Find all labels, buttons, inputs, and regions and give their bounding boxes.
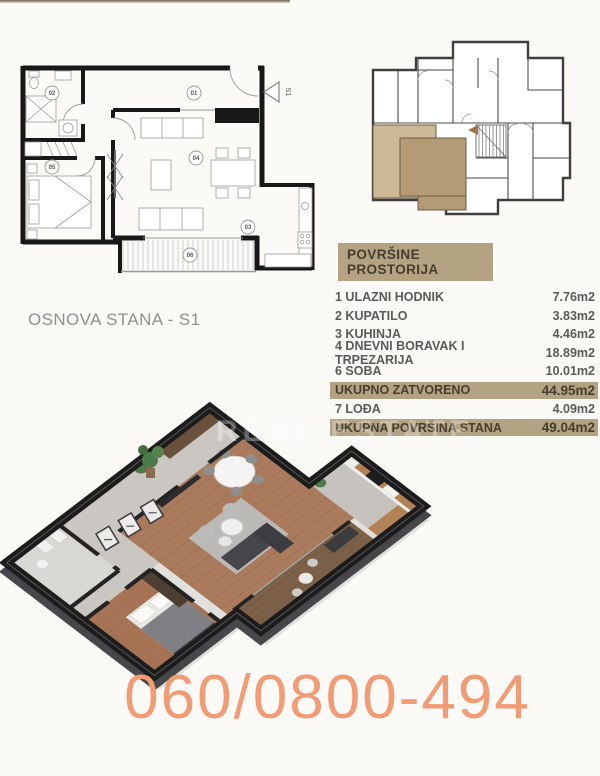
floor-plan-2d: 01 02 03 04 05 06 S1 — [15, 60, 325, 290]
room-area-value: 7.76m2 — [553, 290, 595, 304]
room-label-06: 06 — [187, 253, 194, 259]
room-area-value: 49.04m2 — [542, 420, 595, 435]
table-row: 1 ULAZNI HODNIK7.76m2 — [330, 288, 598, 307]
room-label-04: 04 — [193, 156, 200, 162]
room-area-value: 4.09m2 — [553, 402, 595, 416]
room-area-value: 4.46m2 — [553, 327, 595, 341]
building-locator-plan — [358, 28, 578, 228]
room-name: 4 DNEVNI BORAVAK I TRPEZARIJA — [335, 339, 546, 367]
iso-floors — [7, 388, 424, 694]
table-row: 4 DNEVNI BORAVAK I TRPEZARIJA18.89m2 — [330, 344, 598, 363]
room-area-value: 44.95m2 — [542, 383, 595, 398]
table-row: 2 KUPATILO3.83m2 — [330, 307, 598, 326]
room-name: 6 SOBA — [335, 364, 382, 378]
phone-number: 060/0800-494 — [55, 664, 600, 732]
room-label-01: 01 — [191, 91, 198, 97]
room-name: 2 KUPATILO — [335, 309, 407, 323]
room-label-02: 02 — [49, 91, 56, 97]
top-accent-line — [0, 0, 290, 3]
room-label-03: 03 — [245, 225, 252, 231]
entrance-arrow: S1 — [264, 82, 293, 102]
entrance-label: S1 — [284, 87, 293, 96]
room-area-value: 10.01m2 — [546, 364, 595, 378]
area-table-header: POVRŠINE PROSTORIJA — [338, 243, 493, 281]
iso-plan — [7, 388, 424, 694]
flyer-page: 01 02 03 04 05 06 S1 OSNOVA STANA - S1 — [0, 0, 600, 776]
room-area-value: 18.89m2 — [546, 346, 595, 360]
plan-title: OSNOVA STANA - S1 — [28, 310, 200, 330]
room-area-value: 3.83m2 — [553, 309, 595, 323]
room-label-05: 05 — [49, 165, 56, 171]
room-name: 1 ULAZNI HODNIK — [335, 290, 444, 304]
locator-stairs — [476, 125, 506, 157]
